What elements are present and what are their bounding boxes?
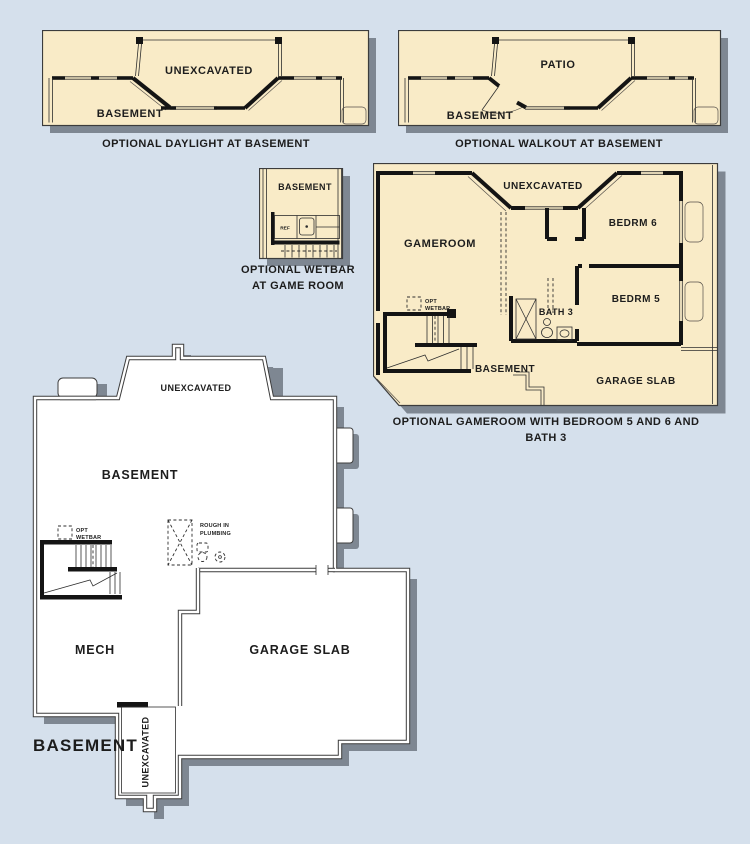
bay-shadow — [272, 368, 283, 397]
label-unexcavated: UNEXCAVATED — [503, 181, 582, 192]
caption-wetbar: OPTIONAL WETBAR AT GAME ROOM — [228, 262, 368, 294]
label-gameroom: GAMEROOM — [404, 238, 476, 250]
panel-daylight: UNEXCAVATED BASEMENT OPTIONAL DAYLIGHT A… — [42, 30, 382, 138]
label-unexcavated-porch: UNEXCAVATED — [141, 716, 151, 787]
label-basement: BASEMENT — [475, 364, 535, 375]
plan-title: BASEMENT — [33, 736, 138, 756]
wetbar-plan-drawing: REF BASEMENT — [259, 168, 355, 270]
label-opt: OPT — [425, 299, 437, 305]
label-unexcavated-bay: UNEXCAVATED — [161, 383, 232, 393]
caption-wetbar-line1: OPTIONAL WETBAR — [228, 262, 368, 278]
walkout-plan-drawing: PATIO BASEMENT — [398, 30, 734, 138]
label-basement: BASEMENT — [278, 182, 332, 192]
caption-walkout: OPTIONAL WALKOUT AT BASEMENT — [398, 136, 720, 152]
panel-gameroom: OPT WETBAR UNEXCAVATED GAMEROOM BEDRM 6 … — [373, 163, 730, 418]
label-garage-slab: GARAGE SLAB — [596, 376, 675, 387]
label-basement: BASEMENT — [102, 468, 179, 482]
label-bedrm5: BEDRM 5 — [612, 294, 661, 305]
label-mech: MECH — [75, 643, 115, 657]
wetbar-wall — [271, 212, 275, 245]
label-wetbar: WETBAR — [76, 535, 101, 541]
label-ref: REF — [280, 226, 290, 232]
panel-walkout: PATIO BASEMENT OPTIONAL WALKOUT AT BASEM… — [398, 30, 734, 138]
floorplan-sheet: UNEXCAVATED BASEMENT OPTIONAL DAYLIGHT A… — [0, 0, 750, 844]
label-rough-in: ROUGH IN — [200, 523, 229, 529]
label-wetbar: WETBAR — [425, 306, 450, 312]
label-unexcavated: UNEXCAVATED — [165, 65, 253, 77]
label-opt: OPT — [76, 528, 88, 534]
label-plumbing: PLUMBING — [200, 531, 231, 537]
caption-wetbar-line2: AT GAME ROOM — [228, 278, 368, 294]
window — [60, 396, 96, 400]
label-bedrm6: BEDRM 6 — [609, 218, 658, 229]
daylight-plan-drawing: UNEXCAVATED BASEMENT — [42, 30, 382, 138]
stair-wall — [271, 241, 340, 245]
label-basement: BASEMENT — [447, 110, 514, 122]
gameroom-plan-drawing: OPT WETBAR UNEXCAVATED GAMEROOM BEDRM 6 … — [373, 163, 730, 418]
label-garage-slab: GARAGE SLAB — [249, 643, 350, 657]
label-patio: PATIO — [541, 59, 576, 71]
window-well — [58, 378, 97, 398]
label-bath3: BATH 3 — [539, 307, 573, 317]
caption-daylight: OPTIONAL DAYLIGHT AT BASEMENT — [42, 136, 370, 152]
label-basement: BASEMENT — [97, 108, 164, 120]
caption-gameroom: OPTIONAL GAMEROOM WITH BEDROOM 5 AND 6 A… — [376, 414, 716, 446]
panel-wetbar: REF BASEMENT OPTIONAL WETBAR AT GAME ROO… — [259, 168, 355, 270]
